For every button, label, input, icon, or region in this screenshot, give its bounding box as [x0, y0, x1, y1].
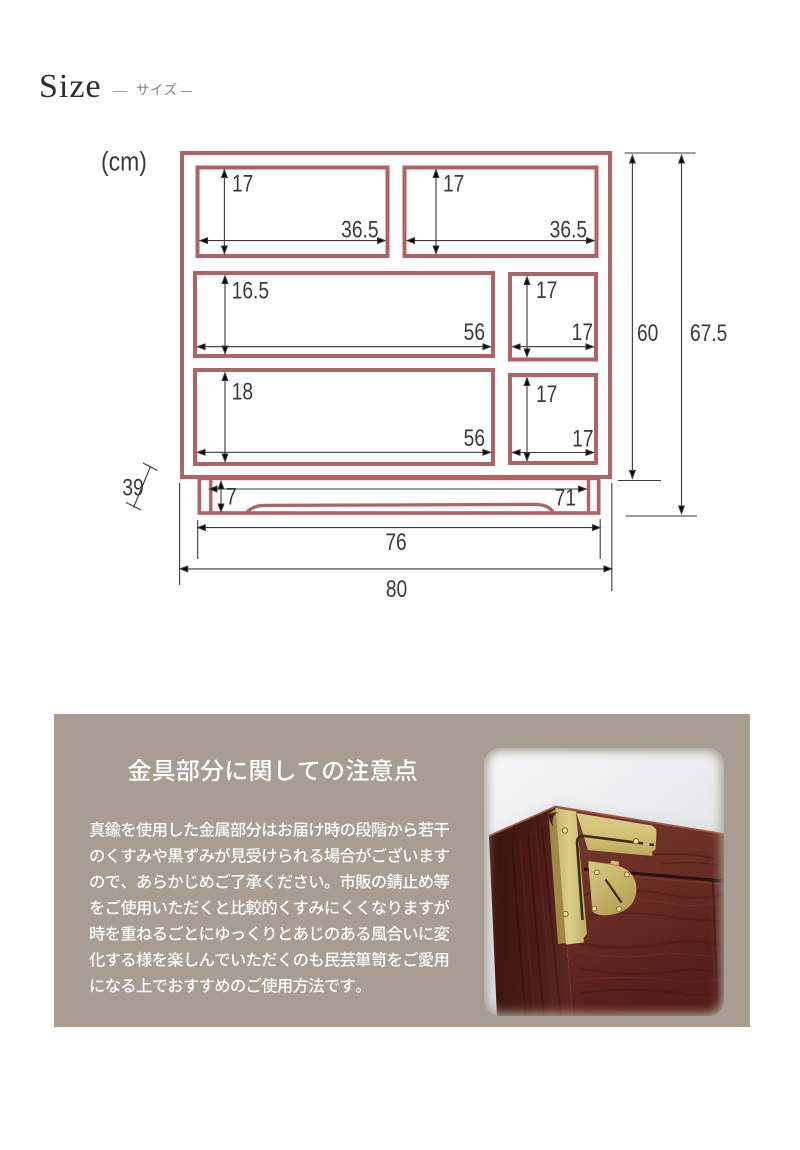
svg-text:17: 17: [536, 276, 557, 304]
svg-text:7: 7: [226, 482, 237, 510]
svg-text:60: 60: [637, 319, 658, 347]
svg-text:36.5: 36.5: [550, 215, 587, 243]
svg-text:71: 71: [555, 483, 576, 511]
svg-text:39: 39: [122, 473, 143, 501]
svg-text:16.5: 16.5: [232, 276, 269, 304]
svg-text:67.5: 67.5: [690, 319, 727, 347]
svg-text:17: 17: [572, 318, 593, 346]
svg-text:17: 17: [232, 169, 253, 197]
svg-text:80: 80: [386, 575, 407, 603]
svg-text:17: 17: [536, 380, 557, 408]
svg-text:56: 56: [464, 318, 485, 346]
svg-text:17: 17: [572, 424, 593, 452]
svg-text:18: 18: [232, 377, 253, 405]
svg-text:(cm): (cm): [101, 147, 147, 177]
svg-text:56: 56: [464, 424, 485, 452]
svg-text:76: 76: [385, 528, 406, 556]
svg-text:17: 17: [443, 169, 464, 197]
svg-text:36.5: 36.5: [341, 215, 378, 243]
